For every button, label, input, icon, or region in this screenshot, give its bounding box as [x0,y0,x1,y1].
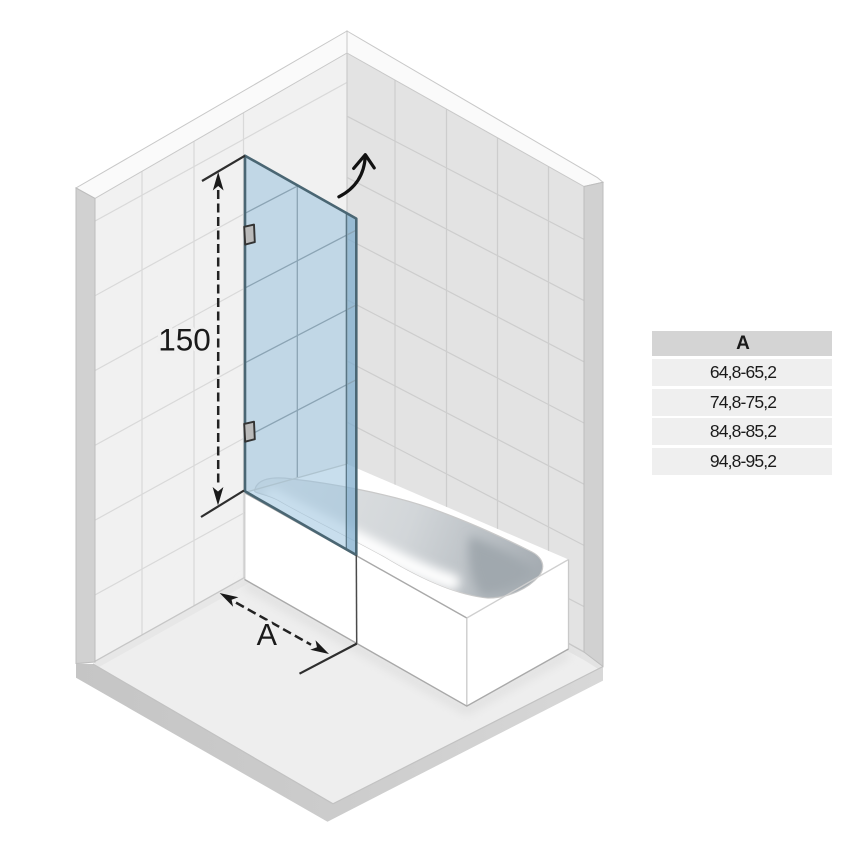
svg-text:A: A [257,618,278,652]
svg-text:150: 150 [158,322,211,358]
